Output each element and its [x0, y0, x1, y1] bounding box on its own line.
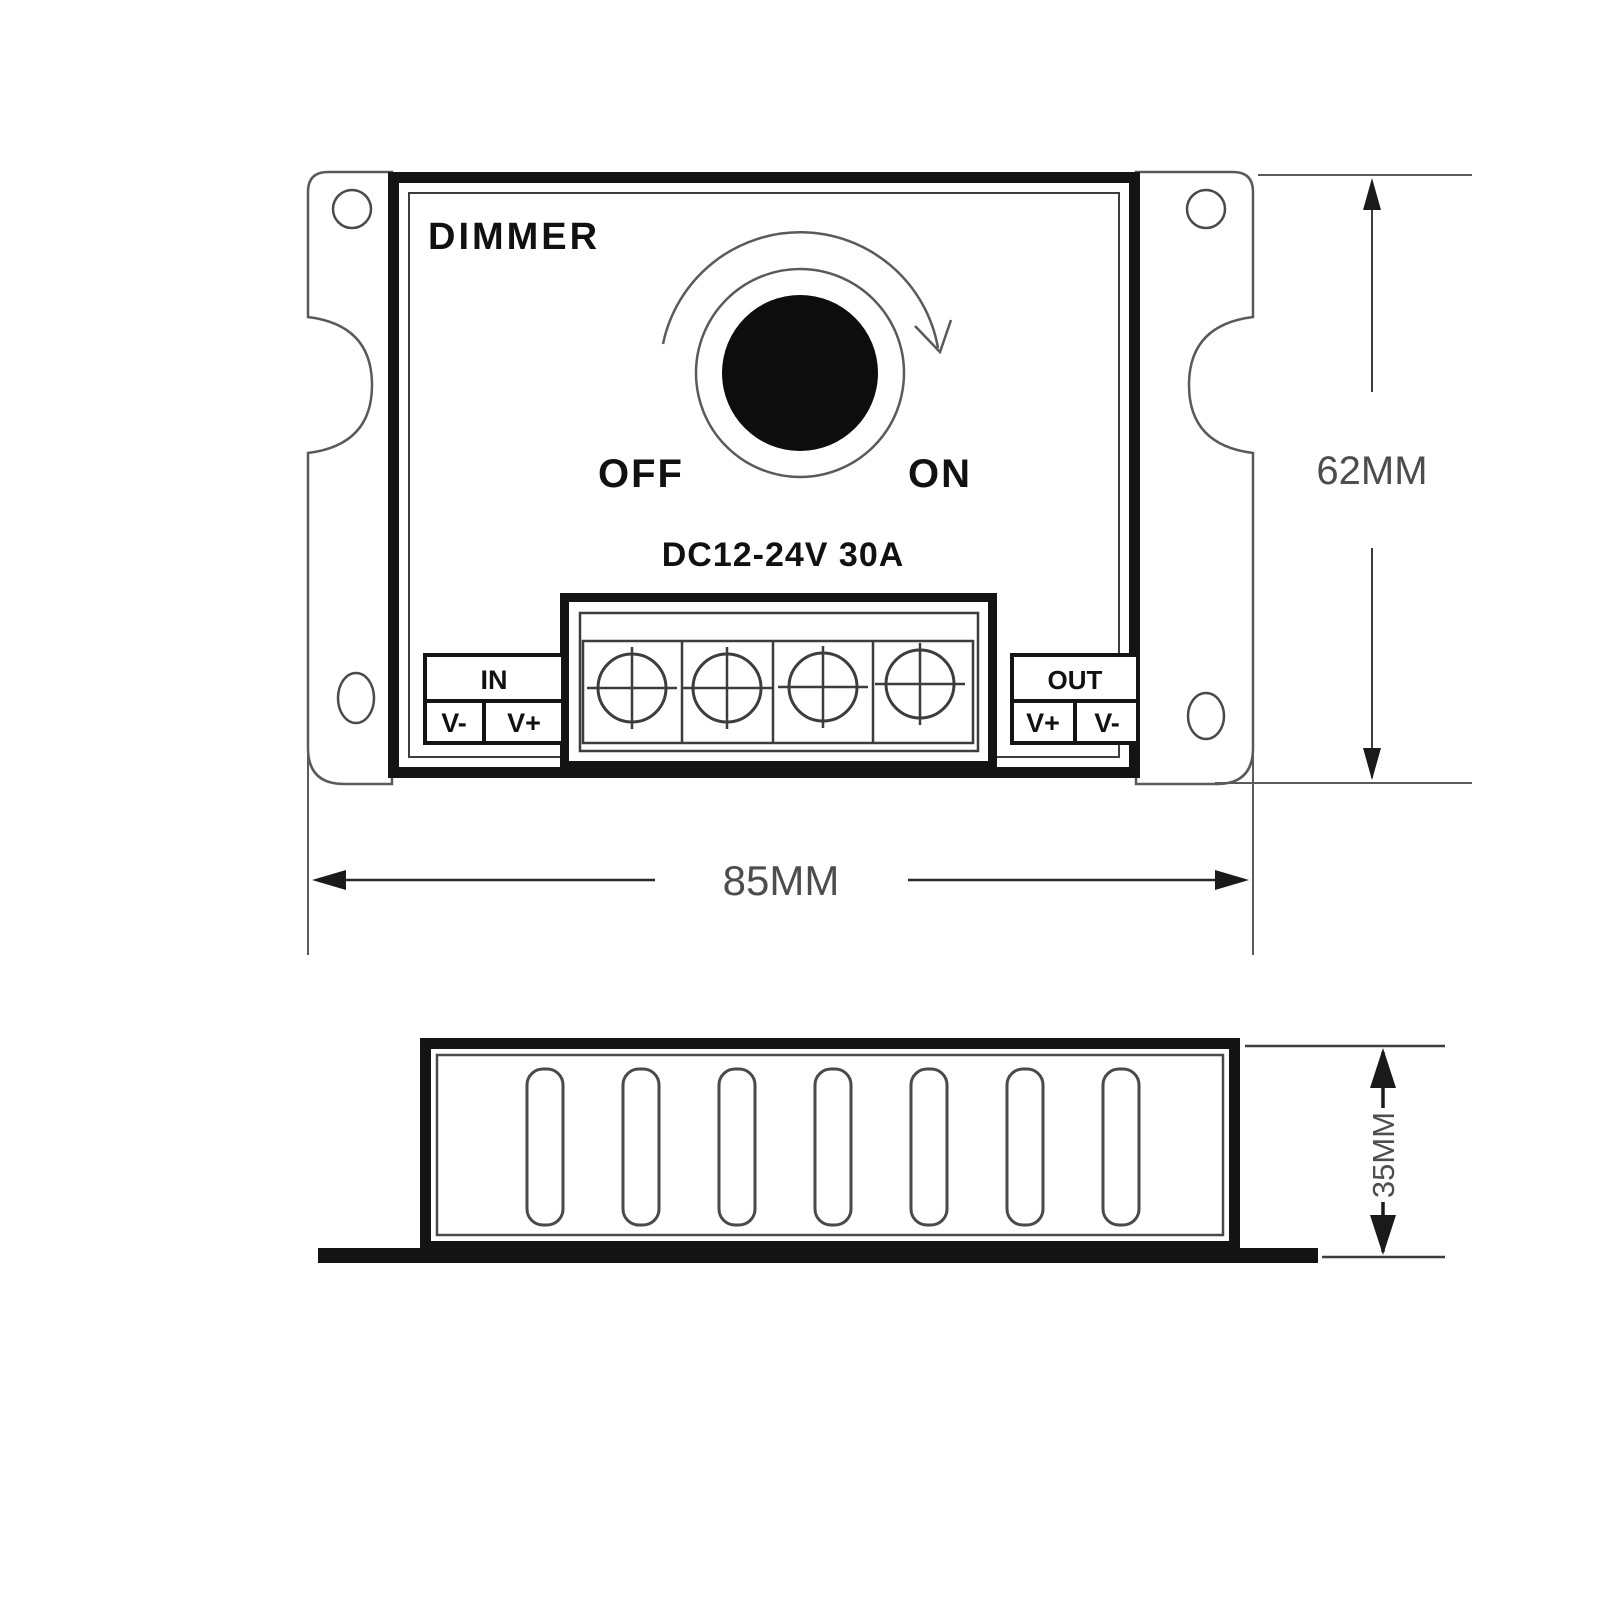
terminal-block [565, 598, 993, 766]
technical-drawing-page: DIMMER OFF ON DC12-24V 30A [0, 0, 1600, 1600]
arrowhead-right [1215, 870, 1249, 890]
output-pin-positive: V+ [1026, 708, 1060, 738]
height-dimension-label: 62MM [1316, 449, 1427, 493]
knob-on-label: ON [908, 452, 972, 496]
vent-slot-7 [1103, 1069, 1139, 1225]
mounting-hole-top-right [1187, 190, 1225, 228]
output-label: OUT [1048, 665, 1103, 695]
mounting-hole-bottom-left [338, 673, 374, 723]
mounting-flange-right [1136, 172, 1253, 784]
rating-label: DC12-24V 30A [662, 536, 905, 574]
output-pin-negative: V- [1094, 708, 1120, 738]
input-pin-negative: V- [441, 708, 467, 738]
vent-slot-3 [719, 1069, 755, 1225]
arrowhead-down [1363, 748, 1381, 780]
device-title: DIMMER [428, 216, 600, 258]
vent-slot-4 [815, 1069, 851, 1225]
arrowhead-down [1370, 1215, 1396, 1255]
output-label-box: OUT V+ V- [1012, 655, 1138, 743]
mounting-hole-top-left [333, 190, 371, 228]
dimmer-dimension-diagram: DIMMER OFF ON DC12-24V 30A [0, 0, 1600, 1600]
vent-slot-6 [1007, 1069, 1043, 1225]
depth-dimension-label: 35MM [1366, 1112, 1401, 1198]
top-view: DIMMER OFF ON DC12-24V 30A [308, 172, 1253, 784]
arrowhead-left [312, 870, 346, 890]
mounting-hole-bottom-right [1188, 693, 1224, 739]
width-dimension: 85MM [308, 750, 1253, 955]
vent-slot-1 [527, 1069, 563, 1225]
knob[interactable] [722, 295, 878, 451]
input-label: IN [481, 665, 508, 695]
knob-off-label: OFF [598, 452, 684, 496]
width-dimension-label: 85MM [723, 857, 840, 904]
side-view [318, 1044, 1318, 1264]
depth-dimension: 35MM [1245, 1046, 1445, 1257]
vent-slot-5 [911, 1069, 947, 1225]
vent-slot-2 [623, 1069, 659, 1225]
input-pin-positive: V+ [507, 708, 541, 738]
arrowhead-up [1363, 178, 1381, 210]
arrowhead-up [1370, 1048, 1396, 1088]
input-label-box: IN V- V+ [425, 655, 563, 743]
